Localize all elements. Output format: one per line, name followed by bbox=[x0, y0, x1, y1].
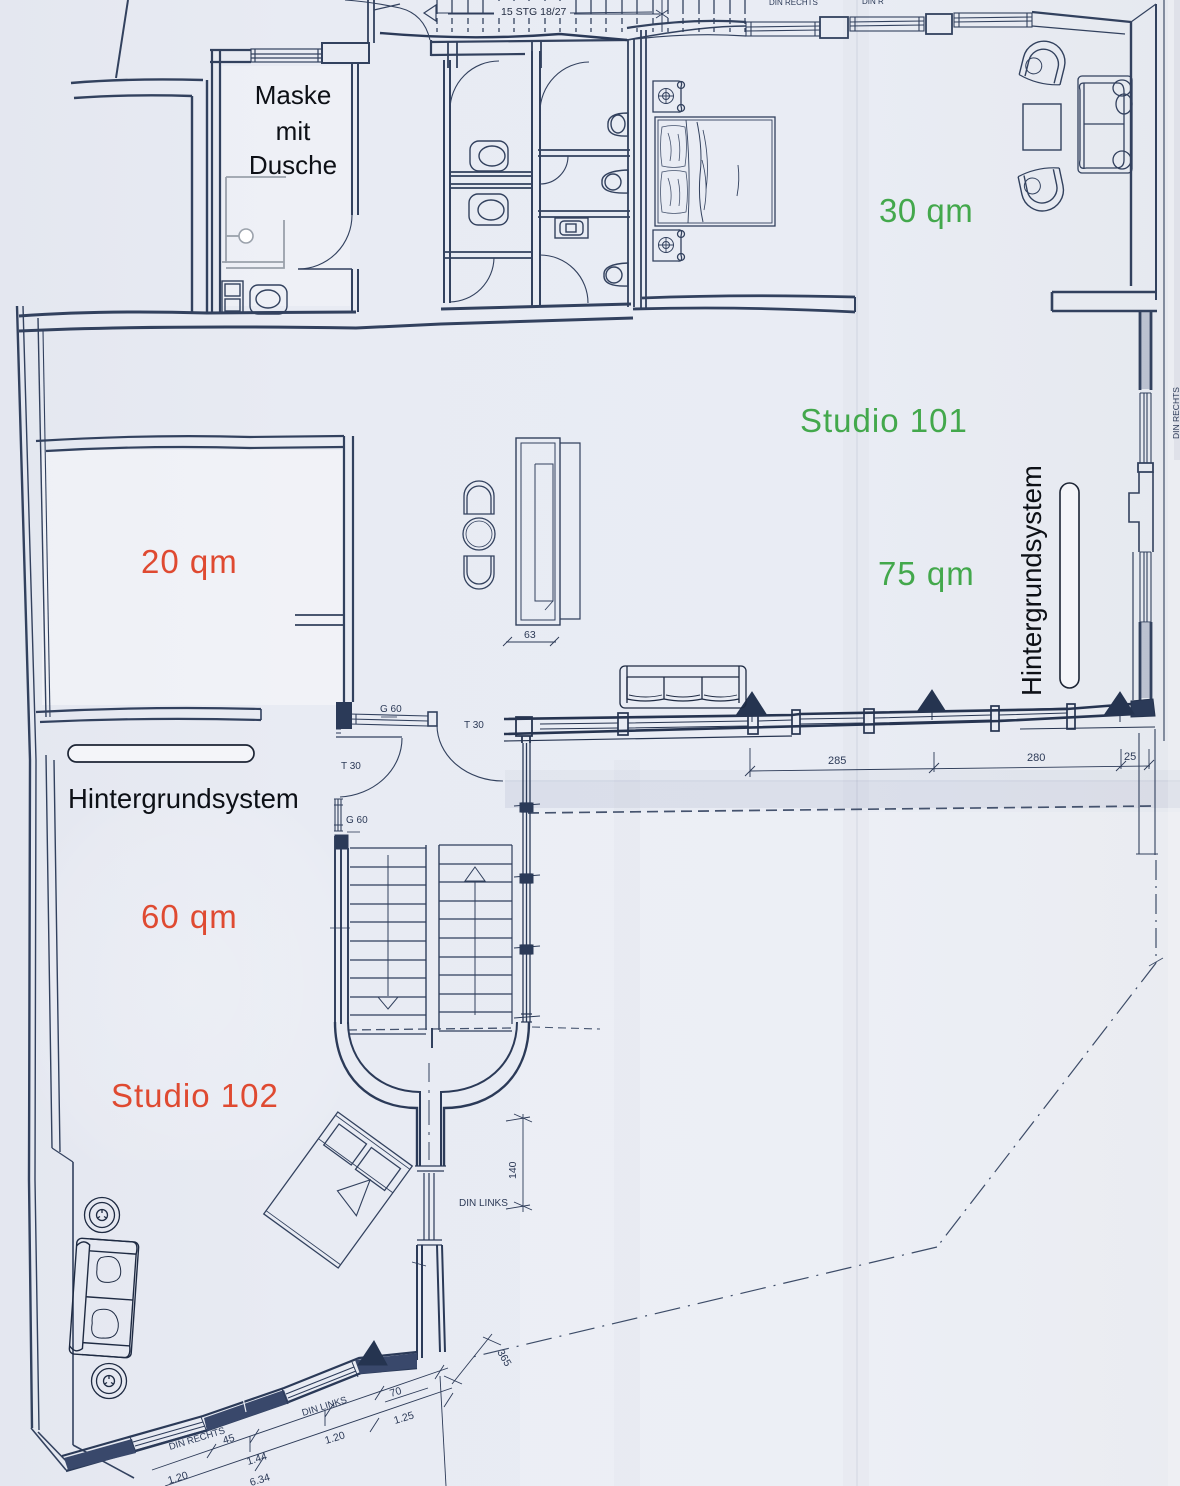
svg-text:DIN RECHTS: DIN RECHTS bbox=[769, 0, 818, 7]
svg-text:63: 63 bbox=[524, 629, 536, 641]
svg-text:285: 285 bbox=[828, 755, 846, 767]
svg-text:75 qm: 75 qm bbox=[878, 555, 975, 592]
svg-text:G 60: G 60 bbox=[380, 704, 402, 715]
svg-text:G 60: G 60 bbox=[346, 815, 368, 826]
svg-text:Maske: Maske bbox=[255, 80, 332, 110]
svg-text:Hintergrundsystem: Hintergrundsystem bbox=[1016, 465, 1047, 696]
svg-text:20 qm: 20 qm bbox=[141, 543, 238, 580]
svg-text:T 30: T 30 bbox=[464, 720, 484, 731]
svg-text:mit: mit bbox=[276, 116, 311, 146]
svg-text:25: 25 bbox=[1124, 751, 1136, 763]
svg-text:140: 140 bbox=[507, 1161, 519, 1179]
svg-text:DIN LINKS: DIN LINKS bbox=[459, 1198, 508, 1209]
svg-text:Dusche: Dusche bbox=[249, 150, 337, 180]
svg-text:Hintergrundsystem: Hintergrundsystem bbox=[68, 783, 299, 814]
svg-text:280: 280 bbox=[1027, 752, 1045, 764]
svg-text:DIN R: DIN R bbox=[862, 0, 884, 6]
svg-text:30 qm: 30 qm bbox=[879, 192, 973, 229]
svg-text:Studio 102: Studio 102 bbox=[111, 1077, 279, 1114]
svg-text:60 qm: 60 qm bbox=[141, 898, 238, 935]
svg-text:Studio 101: Studio 101 bbox=[800, 402, 968, 439]
svg-text:DIN RECHTS: DIN RECHTS bbox=[1171, 387, 1180, 439]
svg-text:T 30: T 30 bbox=[341, 761, 361, 772]
svg-text:15 STG 18/27: 15 STG 18/27 bbox=[501, 6, 567, 18]
